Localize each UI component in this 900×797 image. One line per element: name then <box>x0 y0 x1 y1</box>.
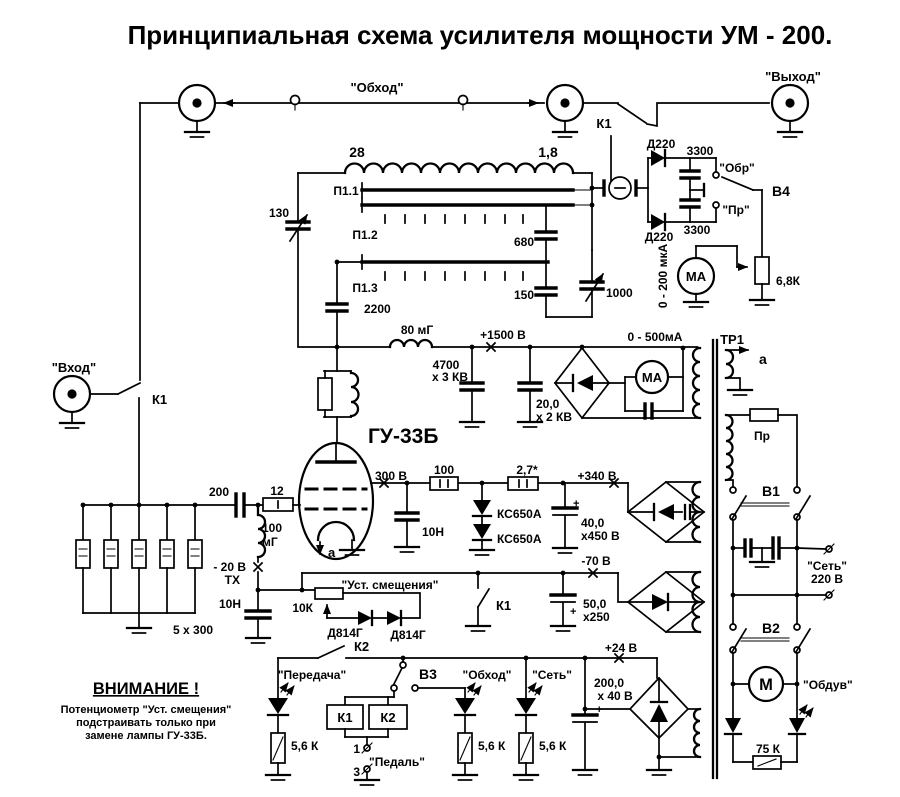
hv-winding <box>693 348 700 418</box>
motor-label: М <box>759 676 773 694</box>
warning-line2: подстраивать только при <box>76 717 216 729</box>
l80-label: 80 мГ <box>401 323 434 337</box>
warning-note: ВНИМАНИЕ ! Потенциометр "Уст. смещения" … <box>61 680 232 742</box>
r68k-pot <box>755 257 769 284</box>
d814-1 <box>358 611 372 625</box>
led-bypass: "Обход" 5,6 К <box>453 668 512 780</box>
c10n-screen-label: 10Н <box>422 525 444 539</box>
tr1-label: ТР1 <box>720 332 744 347</box>
v1500-label: +1500 В <box>480 328 526 342</box>
c2200-label: 2200 <box>364 302 391 316</box>
d220-top-diode <box>651 150 665 166</box>
c2000-label: 200,0 <box>594 676 624 690</box>
fan-circuit: М "Обдув" 75 К <box>725 653 853 769</box>
r27-label: 2,7* <box>516 463 538 477</box>
k1-bias-label: К1 <box>496 598 511 613</box>
l100b-label: мГ <box>262 535 278 549</box>
d220-bottom-label: Д220 <box>645 230 674 244</box>
relay-k1-label: К1 <box>337 710 352 725</box>
pedal-pin3-label: 3 <box>353 765 360 779</box>
input-section: "Вход" К1 5 х 300 200 12 100 мГ - 20 В Т… <box>52 360 315 643</box>
v70-label: -70 В <box>581 554 611 568</box>
relay-k2-label: К2 <box>380 710 395 725</box>
tube-gu33b: ГУ-33Б а <box>299 347 438 560</box>
bias-section: "Уст. смещения" 10К Д814Г Д814Г К1 + 50,… <box>292 554 704 642</box>
r56-3-label: 5,6 К <box>539 739 567 753</box>
v340-label: +340 В <box>577 469 616 483</box>
pedal-label: "Педаль" <box>369 755 425 769</box>
d814-2-label: Д814Г <box>390 628 426 642</box>
warning-line3: замене лампы ГУ-33Б. <box>85 730 207 742</box>
v20-label: - 20 В <box>213 560 246 574</box>
winding-24 <box>694 709 700 757</box>
relay-k1-input-contact <box>118 383 140 394</box>
c40b-label: х450 В <box>581 529 620 543</box>
bias-pot <box>315 588 343 599</box>
net-label: "Сеть" <box>807 559 847 573</box>
screen-supply-section: 300 В 100 2,7* +340 В 10Н КС650А КС650А … <box>371 463 704 555</box>
fuse <box>750 409 778 421</box>
r27-feedthrough <box>508 477 538 490</box>
line-filter <box>731 538 800 567</box>
p12-label: П1.2 <box>352 228 378 242</box>
swr-meter-section: Д220 Д220 3300 3300 "Обр" "Пр" В4 6,8К М… <box>592 137 801 308</box>
obr-label: "Обр" <box>719 161 754 175</box>
tube-label: ГУ-33Б <box>368 425 438 448</box>
ks2-label: КС650А <box>497 532 542 546</box>
c20-label: 20,0 <box>536 397 560 411</box>
winding-a <box>726 350 733 378</box>
v300-label: 300 В <box>375 469 407 483</box>
ks650a-1 <box>473 500 491 515</box>
l80-choke <box>390 340 432 347</box>
schematic-um200: Принципиальная схема усилителя мощности … <box>0 0 900 797</box>
fan-led <box>789 718 805 733</box>
coil-1-8-label: 1,8 <box>538 144 558 160</box>
v3-switch <box>394 668 402 684</box>
fan-label: "Обдув" <box>803 678 853 692</box>
relay-k1-bias-contact <box>478 589 489 607</box>
c130-label: 130 <box>269 206 289 220</box>
pedal-pin1-label: 1 <box>353 742 360 756</box>
swr-scale-label: 0 - 200 мкА <box>656 244 670 309</box>
v1-label: В1 <box>762 483 780 499</box>
v1-switch: В1 <box>730 483 810 520</box>
led-bypass-label: "Обход" <box>463 668 512 682</box>
tank-coil <box>345 164 573 174</box>
led-net: "Сеть" 5,6 К <box>514 658 572 780</box>
plate-meter-face: МА <box>642 370 663 385</box>
r10k-label: 10К <box>292 601 313 615</box>
mains-section: ТР1 а Пр В1 "Сеть" 220 В <box>713 332 853 778</box>
relay-k1-antenna-contact <box>618 104 646 123</box>
c150-label: 150 <box>514 288 534 302</box>
warning-line1: Потенциометр "Уст. смещения" <box>61 704 232 716</box>
fan-diode <box>725 718 741 733</box>
d220-bottom-diode <box>651 214 665 230</box>
r68k-label: 6,8К <box>776 274 801 288</box>
p13-label: П1.3 <box>352 281 378 295</box>
k1-input-label: К1 <box>152 392 167 407</box>
bias-pot-label: "Уст. смещения" <box>342 578 439 592</box>
r56-1-label: 5,6 К <box>291 739 319 753</box>
hv-supply-section: 80 мГ +1500 В 4700 х 3 КВ 20,0 х 2 КВ МА… <box>335 323 700 427</box>
v2-switch: В2 <box>730 620 810 653</box>
warning-title: ВНИМАНИЕ ! <box>93 680 199 698</box>
r12-label: 12 <box>270 484 284 498</box>
tube-a-label: а <box>328 545 336 560</box>
relay-coil-block: В3 К1 К2 1 "Педаль" 3 <box>327 658 465 785</box>
r75k-label: 75 К <box>756 742 781 756</box>
r56-2-label: 5,6 К <box>478 739 506 753</box>
led-tx-label: "Передача" <box>278 668 346 682</box>
c3300-top-label: 3300 <box>687 144 714 158</box>
coil-28-label: 28 <box>349 144 365 160</box>
d814-2 <box>387 611 401 625</box>
tank-circuit: 28 1,8 П1.1 П1.2 П1.3 130 680 150 2200 1… <box>269 144 633 347</box>
tap-a-label: а <box>759 351 767 367</box>
output-label: "Выход" <box>765 69 821 84</box>
page-title: Принципиальная схема усилителя мощности … <box>128 20 833 50</box>
relay-k2-contact <box>318 646 344 658</box>
swr-meter-face: МА <box>686 269 707 284</box>
ks650a-2 <box>473 524 491 539</box>
led-net-label: "Сеть" <box>532 668 572 682</box>
c2000b-label: х 40 В <box>597 689 633 703</box>
p11-label: П1.1 <box>333 184 359 198</box>
c10n-bias-label: 10Н <box>219 597 241 611</box>
ks1-label: КС650А <box>497 507 542 521</box>
c200-label: 200 <box>209 485 229 499</box>
r5x300-label: 5 х 300 <box>173 623 213 637</box>
v4-switch <box>722 177 753 190</box>
v2-label: В2 <box>762 620 780 636</box>
net-voltage-label: 220 В <box>811 572 843 586</box>
fuse-label: Пр <box>754 429 770 443</box>
k1-antenna-label: К1 <box>596 116 611 131</box>
c3300-bottom-label: 3300 <box>684 223 711 237</box>
pr-contact-label: "Пр" <box>722 203 749 217</box>
grid-resistor-bank <box>76 505 202 633</box>
primary-winding <box>726 415 733 480</box>
r100-label: 100 <box>434 463 454 477</box>
d814-1-label: Д814Г <box>327 626 363 640</box>
c50b-label: х250 <box>583 610 610 624</box>
control-rail-section: К2 +24 В "Передача" 5,6 К В3 К1 К2 <box>266 639 700 785</box>
v3-label: В3 <box>419 666 437 682</box>
c50-plus: + <box>570 606 576 618</box>
input-label: "Вход" <box>52 360 96 375</box>
tx-label: ТХ <box>225 573 240 587</box>
c50-label: 50,0 <box>583 597 607 611</box>
bypass-label: "Обход" <box>350 80 403 95</box>
c680-label: 680 <box>514 235 534 249</box>
c1000-label: 1000 <box>606 286 633 300</box>
v24-label: +24 В <box>605 641 638 655</box>
k2-contact-label: К2 <box>354 639 369 654</box>
plate-scale-label: 0 - 500мА <box>628 330 683 344</box>
l100a-label: 100 <box>262 521 282 535</box>
c20b-label: х 2 КВ <box>536 410 572 424</box>
v4-label: В4 <box>772 183 790 199</box>
d220-top-label: Д220 <box>647 137 676 151</box>
c40-label: 40,0 <box>581 516 605 530</box>
r100-feedthrough <box>430 477 458 490</box>
c4700b-label: х 3 КВ <box>432 370 468 384</box>
